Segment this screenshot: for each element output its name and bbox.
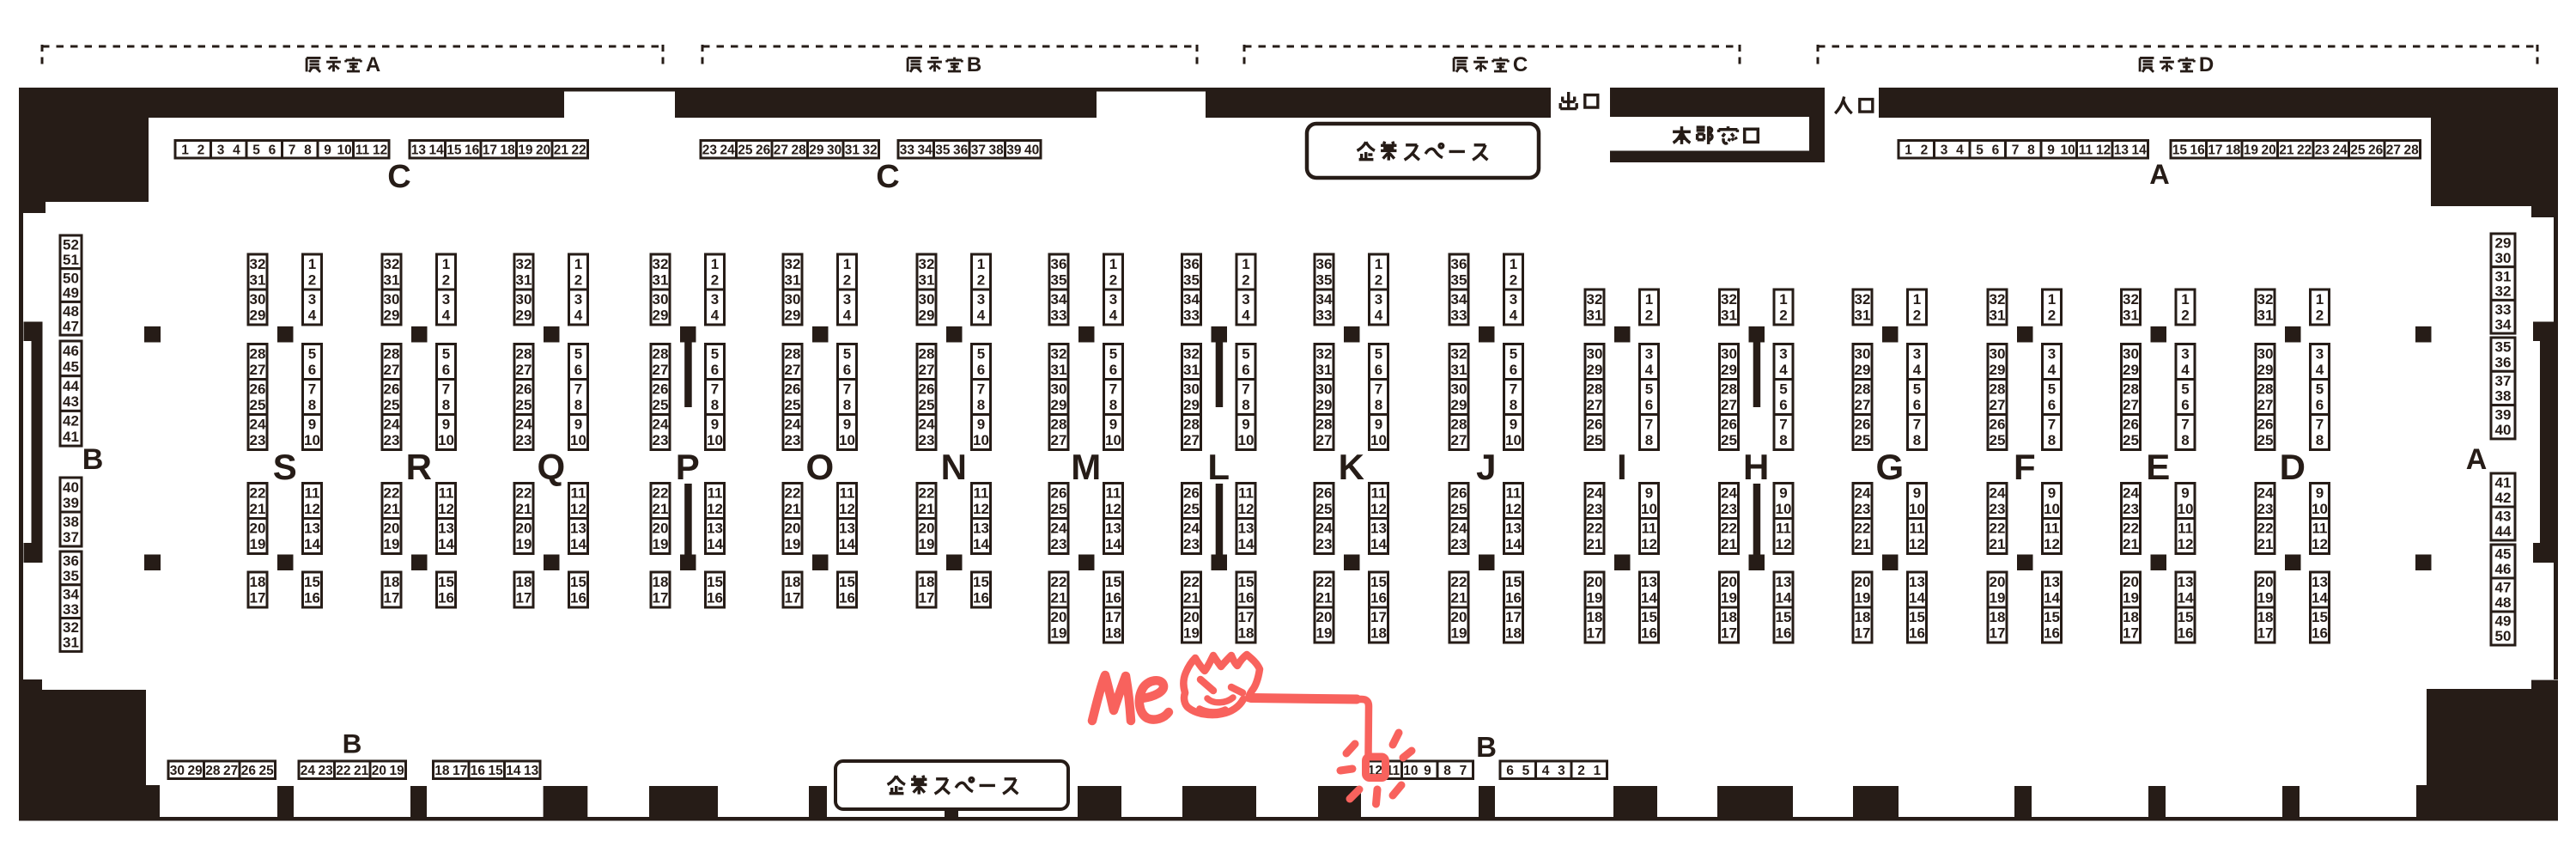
svg-text:29: 29 [2123, 362, 2139, 378]
svg-text:27: 27 [1451, 432, 1467, 448]
svg-text:19: 19 [1451, 625, 1467, 642]
svg-text:8: 8 [2048, 432, 2056, 448]
svg-text:23: 23 [653, 432, 669, 448]
svg-text:4: 4 [442, 308, 451, 324]
svg-text:4: 4 [233, 143, 240, 157]
svg-text:24: 24 [785, 417, 801, 433]
svg-text:6: 6 [269, 143, 276, 157]
svg-text:4: 4 [1913, 362, 1922, 378]
svg-text:20: 20 [1451, 609, 1467, 625]
svg-text:36: 36 [2495, 354, 2512, 370]
svg-text:25: 25 [1316, 501, 1333, 517]
svg-text:7: 7 [1913, 417, 1921, 433]
svg-text:25: 25 [1990, 432, 2006, 448]
svg-text:6: 6 [2048, 397, 2056, 413]
svg-text:16: 16 [2190, 143, 2205, 157]
svg-text:23: 23 [1051, 536, 1067, 552]
svg-text:21: 21 [1721, 536, 1737, 552]
svg-text:36: 36 [63, 553, 79, 570]
svg-text:45: 45 [63, 358, 79, 375]
svg-text:13: 13 [1238, 521, 1255, 537]
svg-text:18: 18 [1370, 625, 1387, 642]
svg-text:7: 7 [977, 381, 985, 398]
svg-text:29: 29 [1051, 397, 1067, 413]
svg-text:8: 8 [2181, 432, 2189, 448]
svg-text:52: 52 [63, 237, 79, 253]
svg-text:21: 21 [250, 501, 266, 517]
svg-text:4: 4 [1109, 308, 1118, 324]
svg-text:22: 22 [1051, 574, 1067, 590]
svg-text:25: 25 [384, 397, 400, 413]
svg-text:37: 37 [971, 143, 986, 157]
svg-text:29: 29 [809, 143, 824, 157]
svg-text:33: 33 [1316, 308, 1333, 324]
svg-text:13: 13 [2044, 574, 2060, 590]
svg-text:8: 8 [711, 397, 719, 413]
svg-text:23: 23 [384, 432, 400, 448]
svg-text:4: 4 [711, 308, 720, 324]
svg-text:17: 17 [250, 590, 266, 606]
svg-text:17: 17 [1105, 609, 1121, 625]
svg-text:21: 21 [354, 764, 369, 778]
svg-text:25: 25 [1721, 432, 1737, 448]
svg-text:7: 7 [1375, 381, 1382, 398]
svg-text:32: 32 [1183, 346, 1200, 362]
svg-text:13: 13 [1105, 521, 1121, 537]
svg-text:28: 28 [1316, 417, 1333, 433]
svg-text:19: 19 [653, 536, 669, 552]
svg-text:21: 21 [554, 143, 569, 157]
svg-text:15: 15 [1105, 574, 1121, 590]
svg-text:7: 7 [1460, 764, 1467, 778]
svg-text:10: 10 [570, 432, 586, 448]
svg-text:11: 11 [974, 485, 989, 502]
svg-text:29: 29 [250, 308, 266, 324]
svg-text:19: 19 [389, 764, 404, 778]
svg-text:8: 8 [1443, 764, 1451, 778]
svg-text:H: H [1743, 447, 1769, 487]
svg-text:45: 45 [2495, 546, 2512, 563]
svg-text:26: 26 [241, 764, 257, 778]
svg-text:19: 19 [1587, 590, 1603, 606]
svg-text:16: 16 [1105, 590, 1121, 606]
svg-text:30: 30 [1316, 381, 1333, 398]
svg-text:17: 17 [1990, 625, 2006, 642]
svg-text:33: 33 [1183, 308, 1200, 324]
svg-text:22: 22 [785, 485, 801, 502]
svg-text:14: 14 [1370, 536, 1387, 552]
svg-text:31: 31 [384, 272, 400, 289]
svg-text:21: 21 [653, 501, 669, 517]
svg-text:33: 33 [63, 601, 79, 618]
svg-text:16: 16 [1776, 625, 1792, 642]
svg-text:17: 17 [653, 590, 669, 606]
svg-text:19: 19 [1051, 625, 1067, 642]
svg-text:1: 1 [181, 143, 189, 157]
svg-text:8: 8 [2316, 432, 2324, 448]
svg-text:29: 29 [1451, 397, 1467, 413]
svg-text:14: 14 [2131, 143, 2147, 157]
svg-text:7: 7 [308, 381, 316, 398]
svg-text:16: 16 [1370, 590, 1387, 606]
svg-text:5: 5 [711, 346, 719, 362]
svg-text:26: 26 [756, 143, 771, 157]
svg-text:13: 13 [524, 764, 539, 778]
svg-text:28: 28 [919, 346, 935, 362]
svg-text:23: 23 [919, 432, 935, 448]
svg-text:14: 14 [1641, 590, 1657, 606]
svg-text:15: 15 [2312, 609, 2328, 625]
svg-text:49: 49 [2495, 613, 2512, 630]
svg-text:27: 27 [1990, 397, 2006, 413]
svg-text:25: 25 [653, 397, 669, 413]
svg-text:20: 20 [516, 521, 532, 537]
svg-text:22: 22 [653, 485, 669, 502]
svg-text:23: 23 [250, 432, 266, 448]
svg-text:8: 8 [1913, 432, 1921, 448]
svg-text:17: 17 [483, 143, 497, 157]
svg-text:M: M [1071, 447, 1101, 487]
svg-text:30: 30 [919, 291, 935, 308]
svg-text:6: 6 [1510, 362, 1517, 378]
svg-text:6: 6 [1992, 143, 2000, 157]
svg-text:30: 30 [2123, 346, 2139, 362]
svg-text:28: 28 [1855, 381, 1871, 398]
svg-text:26: 26 [1316, 485, 1333, 502]
svg-text:10: 10 [1403, 764, 1418, 778]
svg-text:48: 48 [2495, 594, 2512, 611]
svg-text:28: 28 [1183, 417, 1200, 433]
svg-text:31: 31 [2123, 308, 2139, 324]
svg-text:17: 17 [1238, 609, 1255, 625]
svg-text:30: 30 [170, 764, 185, 778]
svg-text:40: 40 [1024, 143, 1039, 157]
svg-text:17: 17 [1505, 609, 1522, 625]
svg-text:27: 27 [2257, 397, 2274, 413]
svg-text:20: 20 [536, 143, 550, 157]
svg-text:5: 5 [977, 346, 985, 362]
svg-text:29: 29 [1316, 397, 1333, 413]
svg-text:10: 10 [1105, 432, 1121, 448]
svg-text:2: 2 [1913, 308, 1921, 324]
svg-text:17: 17 [785, 590, 801, 606]
svg-text:35: 35 [1183, 272, 1200, 289]
svg-text:3: 3 [2048, 346, 2056, 362]
svg-text:4: 4 [2181, 362, 2190, 378]
svg-text:9: 9 [1109, 417, 1117, 433]
svg-text:13: 13 [438, 521, 454, 537]
svg-text:25: 25 [2257, 432, 2274, 448]
svg-text:24: 24 [720, 143, 735, 157]
svg-text:12: 12 [1909, 536, 1925, 552]
svg-text:7: 7 [289, 143, 296, 157]
svg-text:5: 5 [1645, 381, 1653, 398]
svg-text:24: 24 [1990, 485, 2006, 502]
svg-text:30: 30 [384, 291, 400, 308]
svg-text:1: 1 [574, 256, 582, 272]
svg-text:11: 11 [1238, 485, 1254, 502]
svg-text:5: 5 [1522, 764, 1530, 778]
svg-text:31: 31 [2495, 268, 2512, 284]
svg-text:4: 4 [977, 308, 986, 324]
svg-text:12: 12 [2178, 536, 2194, 552]
svg-text:19: 19 [250, 536, 266, 552]
svg-text:10: 10 [707, 432, 723, 448]
svg-text:13: 13 [1505, 521, 1522, 537]
svg-text:38: 38 [988, 143, 1004, 157]
svg-text:9: 9 [2316, 485, 2324, 502]
svg-text:10: 10 [973, 432, 989, 448]
svg-text:32: 32 [1990, 291, 2006, 308]
svg-text:14: 14 [1776, 590, 1792, 606]
svg-text:32: 32 [919, 256, 935, 272]
svg-text:19: 19 [2244, 143, 2259, 157]
svg-text:16: 16 [570, 590, 586, 606]
svg-text:5: 5 [2181, 381, 2189, 398]
svg-text:14: 14 [304, 536, 320, 552]
svg-text:2: 2 [711, 272, 719, 289]
svg-text:18: 18 [2226, 143, 2241, 157]
svg-text:11: 11 [2178, 521, 2193, 537]
svg-text:24: 24 [653, 417, 669, 433]
svg-text:32: 32 [384, 256, 400, 272]
svg-text:9: 9 [977, 417, 985, 433]
svg-text:20: 20 [919, 521, 935, 537]
svg-text:15: 15 [570, 574, 586, 590]
svg-text:23: 23 [2257, 501, 2274, 517]
svg-text:28: 28 [205, 764, 221, 778]
svg-text:39: 39 [1006, 143, 1022, 157]
svg-text:21: 21 [1990, 536, 2006, 552]
svg-text:18: 18 [653, 574, 669, 590]
svg-text:10: 10 [2060, 143, 2075, 157]
svg-text:17: 17 [2208, 143, 2222, 157]
svg-text:19: 19 [2257, 590, 2274, 606]
svg-text:34: 34 [2495, 316, 2512, 332]
svg-text:2: 2 [843, 272, 851, 289]
svg-text:31: 31 [785, 272, 801, 289]
svg-text:28: 28 [653, 346, 669, 362]
svg-text:24: 24 [1587, 485, 1603, 502]
svg-text:11: 11 [2079, 143, 2093, 157]
svg-text:5: 5 [1510, 346, 1517, 362]
svg-text:16: 16 [839, 590, 855, 606]
svg-text:21: 21 [1587, 536, 1603, 552]
svg-text:22: 22 [1721, 521, 1737, 537]
svg-text:12: 12 [1776, 536, 1792, 552]
svg-text:35: 35 [1451, 272, 1467, 289]
svg-text:25: 25 [1051, 501, 1067, 517]
svg-text:13: 13 [2114, 143, 2129, 157]
svg-text:D: D [2280, 447, 2306, 487]
svg-text:7: 7 [1645, 417, 1653, 433]
svg-text:29: 29 [516, 308, 532, 324]
svg-text:29: 29 [1990, 362, 2006, 378]
svg-text:5: 5 [2316, 381, 2324, 398]
svg-text:6: 6 [2316, 397, 2324, 413]
svg-text:33: 33 [1051, 308, 1067, 324]
svg-text:20: 20 [1051, 609, 1067, 625]
svg-text:8: 8 [843, 397, 851, 413]
svg-text:13: 13 [839, 521, 855, 537]
svg-text:33: 33 [2495, 302, 2512, 318]
svg-text:14: 14 [1909, 590, 1925, 606]
svg-text:12: 12 [1641, 536, 1657, 552]
svg-text:27: 27 [1316, 432, 1333, 448]
svg-text:50: 50 [63, 270, 79, 286]
svg-text:30: 30 [1587, 346, 1603, 362]
svg-text:29: 29 [2257, 362, 2274, 378]
svg-text:24: 24 [301, 764, 316, 778]
svg-text:14: 14 [570, 536, 586, 552]
svg-text:3: 3 [977, 291, 985, 308]
svg-text:A: A [366, 53, 380, 76]
svg-text:12: 12 [1105, 501, 1121, 517]
svg-text:4: 4 [1375, 308, 1383, 324]
svg-text:P: P [676, 447, 700, 487]
svg-text:16: 16 [973, 590, 989, 606]
svg-text:3: 3 [1510, 291, 1517, 308]
svg-text:15: 15 [2178, 609, 2194, 625]
svg-text:3: 3 [1242, 291, 1249, 308]
svg-text:31: 31 [1051, 362, 1067, 378]
svg-text:30: 30 [2495, 250, 2512, 266]
svg-text:31: 31 [919, 272, 935, 289]
svg-text:47: 47 [63, 318, 79, 334]
svg-text:11: 11 [2044, 521, 2060, 537]
svg-text:14: 14 [506, 764, 521, 778]
svg-text:7: 7 [2316, 417, 2324, 433]
svg-text:18: 18 [500, 143, 515, 157]
svg-text:26: 26 [1587, 417, 1603, 433]
svg-text:28: 28 [1451, 417, 1467, 433]
svg-text:32: 32 [516, 256, 532, 272]
svg-text:3: 3 [1109, 291, 1117, 308]
svg-text:28: 28 [384, 346, 400, 362]
svg-text:31: 31 [2257, 308, 2274, 324]
svg-text:28: 28 [2403, 143, 2419, 157]
svg-text:30: 30 [2257, 346, 2274, 362]
svg-text:G: G [1875, 447, 1904, 487]
svg-text:K: K [1339, 447, 1364, 487]
svg-text:3: 3 [1779, 346, 1787, 362]
svg-text:32: 32 [1451, 346, 1467, 362]
svg-text:15: 15 [839, 574, 855, 590]
svg-text:4: 4 [1779, 362, 1788, 378]
svg-text:31: 31 [1587, 308, 1603, 324]
svg-text:26: 26 [384, 381, 400, 398]
svg-text:21: 21 [2123, 536, 2139, 552]
svg-text:25: 25 [2350, 143, 2366, 157]
svg-text:34: 34 [917, 143, 933, 157]
svg-text:25: 25 [2123, 432, 2139, 448]
svg-text:23: 23 [2315, 143, 2330, 157]
svg-text:4: 4 [843, 308, 852, 324]
svg-text:37: 37 [2495, 373, 2512, 389]
svg-text:15: 15 [304, 574, 320, 590]
svg-text:32: 32 [1587, 291, 1603, 308]
svg-text:18: 18 [1990, 609, 2006, 625]
svg-text:15: 15 [707, 574, 723, 590]
svg-text:14: 14 [1238, 536, 1255, 552]
svg-text:30: 30 [1855, 346, 1871, 362]
svg-text:13: 13 [570, 521, 586, 537]
svg-text:D: D [2199, 53, 2214, 76]
svg-text:31: 31 [1855, 308, 1871, 324]
svg-text:16: 16 [465, 143, 480, 157]
svg-text:14: 14 [839, 536, 855, 552]
svg-text:27: 27 [653, 362, 669, 378]
svg-text:20: 20 [1587, 574, 1603, 590]
svg-text:23: 23 [2123, 501, 2139, 517]
svg-text:26: 26 [653, 381, 669, 398]
svg-text:25: 25 [1587, 432, 1603, 448]
svg-text:28: 28 [1051, 417, 1067, 433]
svg-text:7: 7 [2048, 417, 2056, 433]
svg-text:10: 10 [1776, 501, 1792, 517]
svg-text:10: 10 [304, 432, 320, 448]
svg-text:7: 7 [2012, 143, 2020, 157]
svg-text:30: 30 [827, 143, 841, 157]
svg-text:4: 4 [1510, 308, 1518, 324]
svg-text:24: 24 [1183, 521, 1200, 537]
svg-text:18: 18 [1238, 625, 1255, 642]
svg-text:26: 26 [1990, 417, 2006, 433]
svg-text:3: 3 [1941, 143, 1948, 157]
svg-text:17: 17 [2257, 625, 2274, 642]
svg-text:35: 35 [935, 143, 951, 157]
svg-text:3: 3 [1645, 346, 1653, 362]
svg-text:R: R [406, 447, 432, 487]
svg-text:27: 27 [516, 362, 532, 378]
svg-text:15: 15 [1776, 609, 1792, 625]
svg-text:21: 21 [516, 501, 532, 517]
svg-text:24: 24 [1855, 485, 1871, 502]
svg-text:30: 30 [1183, 381, 1200, 398]
svg-text:22: 22 [516, 485, 532, 502]
svg-text:25: 25 [919, 397, 935, 413]
svg-text:8: 8 [1779, 432, 1787, 448]
svg-text:29: 29 [2495, 235, 2512, 252]
svg-text:20: 20 [2123, 574, 2139, 590]
svg-text:Q: Q [537, 447, 565, 487]
svg-text:44: 44 [2495, 523, 2512, 539]
svg-text:22: 22 [1183, 574, 1200, 590]
svg-text:12: 12 [438, 501, 454, 517]
svg-text:32: 32 [2495, 283, 2512, 300]
svg-text:21: 21 [785, 501, 801, 517]
svg-text:24: 24 [2123, 485, 2139, 502]
svg-text:1: 1 [442, 256, 450, 272]
svg-text:2: 2 [1109, 272, 1117, 289]
svg-text:19: 19 [1721, 590, 1737, 606]
svg-text:29: 29 [653, 308, 669, 324]
svg-text:41: 41 [63, 429, 79, 445]
svg-text:22: 22 [571, 143, 586, 157]
svg-text:32: 32 [2257, 291, 2274, 308]
svg-text:42: 42 [2495, 490, 2512, 506]
svg-text:4: 4 [308, 308, 317, 324]
svg-text:19: 19 [785, 536, 801, 552]
svg-text:9: 9 [1375, 417, 1382, 433]
svg-text:6: 6 [711, 362, 719, 378]
svg-text:23: 23 [1451, 536, 1467, 552]
svg-text:29: 29 [1183, 397, 1200, 413]
svg-text:27: 27 [384, 362, 400, 378]
svg-text:5: 5 [442, 346, 450, 362]
svg-text:22: 22 [250, 485, 266, 502]
svg-text:30: 30 [1451, 381, 1467, 398]
